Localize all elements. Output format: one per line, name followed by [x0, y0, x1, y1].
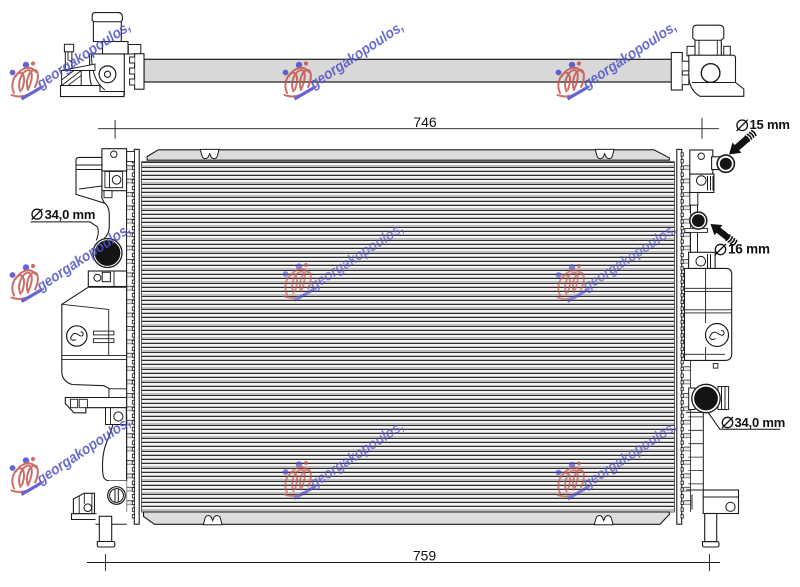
svg-text:15 mm: 15 mm — [750, 117, 790, 132]
svg-text:34,0 mm: 34,0 mm — [735, 415, 786, 430]
svg-text:16 mm: 16 mm — [728, 242, 770, 257]
svg-text:34,0 mm: 34,0 mm — [45, 207, 96, 222]
svg-text:746: 746 — [413, 114, 437, 130]
svg-text:759: 759 — [413, 548, 437, 564]
